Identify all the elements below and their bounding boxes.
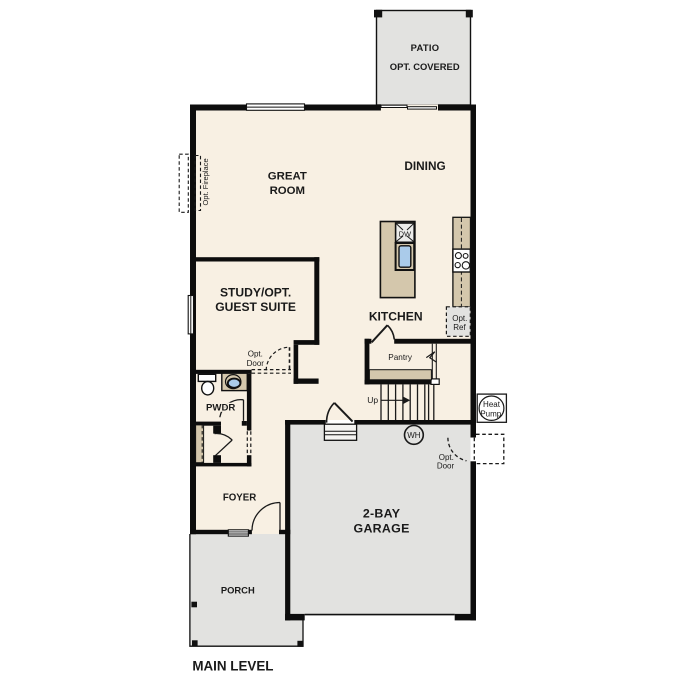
svg-text:MAIN LEVEL: MAIN LEVEL xyxy=(192,659,273,674)
svg-text:Pantry: Pantry xyxy=(388,353,413,362)
svg-text:Opt.: Opt. xyxy=(439,453,454,462)
svg-text:ROOM: ROOM xyxy=(270,185,305,197)
svg-text:FOYER: FOYER xyxy=(223,493,256,504)
svg-text:OPT. COVERED: OPT. COVERED xyxy=(390,61,460,72)
svg-text:DW: DW xyxy=(399,230,412,239)
svg-text:GUEST SUITE: GUEST SUITE xyxy=(215,300,296,314)
svg-text:Ref: Ref xyxy=(453,323,466,332)
svg-text:STUDY/OPT.: STUDY/OPT. xyxy=(220,285,291,299)
svg-text:GARAGE: GARAGE xyxy=(354,521,410,535)
svg-text:GREAT: GREAT xyxy=(268,171,307,183)
svg-text:Up: Up xyxy=(367,395,378,405)
svg-text:Opt.: Opt. xyxy=(452,314,467,323)
svg-text:Door: Door xyxy=(247,359,265,368)
svg-text:WH: WH xyxy=(407,431,421,440)
svg-text:Pump: Pump xyxy=(480,409,501,418)
svg-text:PATIO: PATIO xyxy=(411,42,440,53)
svg-text:PORCH: PORCH xyxy=(221,585,255,596)
svg-text:2-BAY: 2-BAY xyxy=(363,506,401,520)
svg-text:KITCHEN: KITCHEN xyxy=(369,309,423,323)
svg-text:DINING: DINING xyxy=(404,159,445,173)
svg-text:PWDR: PWDR xyxy=(206,403,235,414)
svg-text:Opt.: Opt. xyxy=(248,350,263,359)
svg-text:Heat: Heat xyxy=(483,400,501,409)
svg-text:Door: Door xyxy=(437,462,455,471)
svg-text:Opt. Fireplace: Opt. Fireplace xyxy=(201,158,210,205)
